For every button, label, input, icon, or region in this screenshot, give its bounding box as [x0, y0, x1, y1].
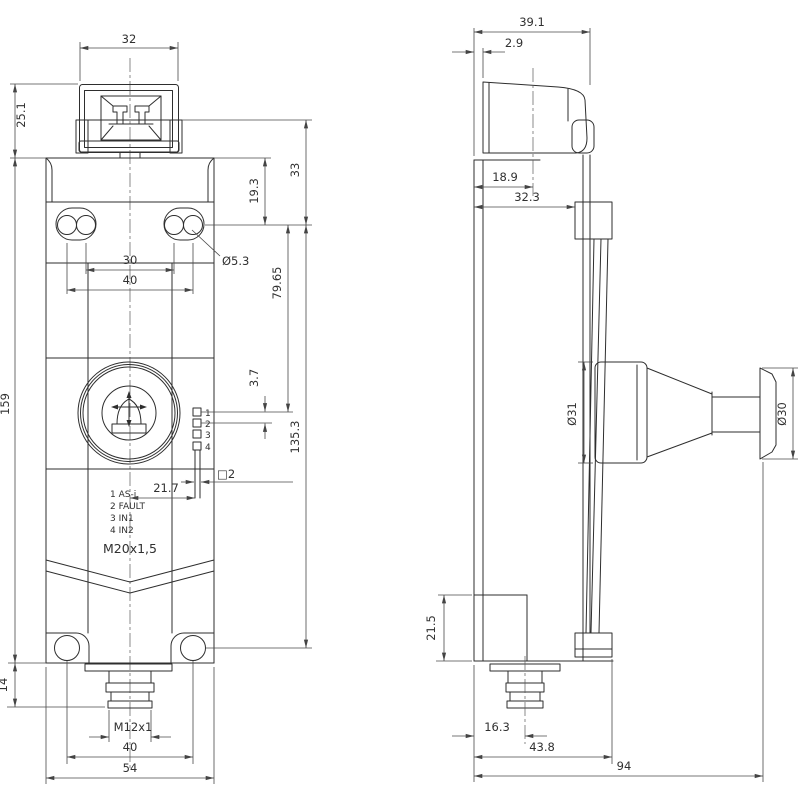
connector-pin-left: [113, 106, 127, 124]
release-knob-side: [595, 362, 776, 463]
dim-depth-top: 39.1: [519, 15, 545, 29]
technical-drawing: 1 2 3 4 1 AS-i 2 FAULT 3 IN1 4 IN2 M20x1…: [0, 0, 800, 800]
dim-width: 54: [123, 761, 138, 775]
led-number-4: 4: [205, 443, 211, 453]
dim-bracket-height: 21.5: [424, 615, 438, 641]
body-side: [474, 155, 613, 661]
dim-body-depth: 43.8: [529, 740, 555, 754]
dim-hole-span-bottom: 40: [123, 740, 138, 754]
drawing-canvas: 1 2 3 4 1 AS-i 2 FAULT 3 IN1 4 IN2 M20x1…: [0, 0, 800, 800]
dim-plug-center: 16.3: [484, 720, 510, 734]
dim-led-x: 21.7: [153, 481, 179, 495]
dim-led-offset: 79.65: [270, 267, 284, 300]
dim-plate-gap: 2.9: [505, 36, 523, 50]
dim-head-center: 18.9: [492, 170, 518, 184]
connector-pin-right: [135, 106, 149, 124]
release-button: [78, 362, 180, 464]
led-number-2: 2: [205, 420, 211, 430]
dim-connector-height: 25.1: [14, 102, 28, 128]
front-view: 1 2 3 4 1 AS-i 2 FAULT 3 IN1 4 IN2 M20x1…: [0, 32, 312, 784]
dim-knob-dia: Ø31: [565, 402, 579, 426]
release-icon: [111, 391, 147, 433]
dim-plug-thread: M12x1: [114, 720, 153, 734]
dim-hole-dia: Ø5.3: [222, 254, 249, 268]
m12-plug-front: [85, 664, 172, 708]
legend-line-2: 2 FAULT: [110, 502, 145, 512]
legend-line-4: 4 IN2: [110, 526, 134, 536]
dim-top-offset: 33: [288, 163, 302, 178]
legend-line-3: 3 IN1: [110, 514, 134, 524]
side-view: 39.1 2.9 18.9 32.3 Ø31 Ø30 21.5: [424, 15, 798, 782]
dim-total-depth: 94: [617, 759, 632, 773]
gland-thread-label: M20x1,5: [103, 541, 157, 556]
dim-cap-dia: Ø30: [775, 402, 789, 426]
led-number-3: 3: [205, 431, 211, 441]
side-dimensions: 39.1 2.9 18.9 32.3 Ø31 Ø30 21.5: [424, 15, 798, 782]
dim-led-size: □2: [217, 467, 235, 481]
led-indicators: 1 2 3 4: [193, 408, 211, 498]
dim-hole-span-inner: 30: [123, 253, 138, 267]
dim-block-offset: 32.3: [514, 190, 540, 204]
led-number-1: 1: [205, 409, 211, 419]
legend-line-1: 1 AS-i: [110, 490, 136, 500]
asi-connector: [76, 85, 182, 159]
dim-led-pitch: 3.7: [247, 369, 261, 387]
dim-hole-span-outer: 40: [123, 273, 138, 287]
dim-bottom-stub: 14: [0, 678, 10, 693]
dim-hole-offset: 19.3: [247, 178, 261, 204]
led-legend: 1 AS-i 2 FAULT 3 IN1 4 IN2: [110, 490, 145, 536]
connector-head-side: [483, 82, 594, 153]
dim-width-top: 32: [122, 32, 137, 46]
dim-hole-span-vertical: 135.3: [288, 421, 302, 454]
dim-body-height: 159: [0, 393, 12, 415]
